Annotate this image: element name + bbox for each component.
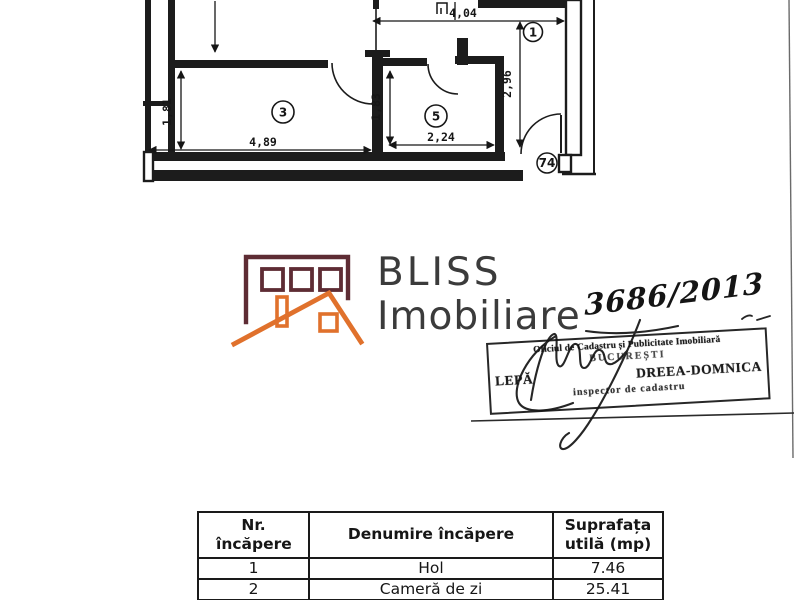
- logo-subtitle: Imobiliare: [377, 294, 581, 339]
- dim-label-room5-height: 1,83: [369, 93, 383, 121]
- wall-left-outer-upper: [145, 0, 151, 103]
- room1-circle: [524, 23, 543, 42]
- col-header-number-text: Nr. încăpere: [216, 516, 291, 555]
- door-arcs: [332, 63, 561, 154]
- logo-window-2: [291, 269, 312, 290]
- cell-room-name: Cameră de zi: [309, 579, 553, 600]
- room-number-circles: 1 3 5 74: [272, 23, 557, 174]
- fold-line: [471, 413, 794, 421]
- cell-room-area: 25.41: [553, 579, 663, 600]
- room-area-table: Nr. încăpere Denumire încăpere Suprafața…: [197, 511, 664, 600]
- dim-label-top-width: 4,04: [449, 6, 477, 20]
- cell-room-name: Hol: [309, 558, 553, 579]
- dimension-labels: 4,04 2,96 1,81 4,89 1,83 2,24: [160, 6, 514, 149]
- wall-bottom-inner: [145, 152, 505, 161]
- wall-middle: [372, 56, 383, 160]
- entrance-door-arc: [521, 114, 561, 154]
- wall-left-outer-lower: [145, 101, 151, 155]
- cell-room-area: 7.46: [553, 558, 663, 579]
- dim-label-room5-width: 2,24: [427, 130, 455, 144]
- wall-room5-top-right: [455, 56, 503, 64]
- logo-roof-line: [234, 293, 361, 344]
- col-header-area: Suprafața utilă (mp): [553, 512, 663, 558]
- wall-right-hollow: [566, 0, 581, 155]
- room3-label: 3: [279, 106, 287, 120]
- wall-stub-top: [373, 0, 379, 9]
- wall-bottom-outer: [143, 170, 523, 181]
- room3-door-arc: [332, 63, 373, 104]
- wall-top-right: [478, 0, 570, 8]
- wall-room5-right: [495, 56, 504, 158]
- col-header-area-text: Suprafața utilă (mp): [561, 516, 656, 555]
- logo-title: BLISS: [377, 250, 502, 295]
- logo-window-1: [262, 269, 283, 290]
- wall-room3-top: [168, 60, 328, 68]
- room1-label: 1: [529, 26, 537, 40]
- logo-roof-window: [320, 314, 337, 331]
- wall-room3-left: [168, 0, 175, 155]
- cell-room-number: 2: [198, 579, 309, 600]
- table-header-row: Nr. încăpere Denumire încăpere Suprafața…: [198, 512, 663, 558]
- dim-label-room3-height: 1,81: [160, 98, 174, 126]
- wall-left-end-block: [144, 152, 153, 181]
- dim-label-room3-width: 4,89: [249, 135, 277, 149]
- wall-step-block: [559, 155, 571, 172]
- stamp-inspector-name-start: LEPĂ: [495, 371, 534, 389]
- window-symbol: [437, 3, 447, 14]
- logo-building: [246, 257, 348, 322]
- dimension-lines: [149, 1, 564, 150]
- scanned-cadastral-document: 4,04 2,96 1,81 4,89 1,83 2,24 1 3 5 74: [0, 0, 800, 600]
- col-header-number: Nr. încăpere: [198, 512, 309, 558]
- handwriting-dashes: [742, 315, 770, 320]
- handwritten-registration-number: 3686/2013: [584, 266, 764, 322]
- room3-circle: [272, 101, 294, 123]
- wall-middle-cap: [365, 50, 390, 57]
- dim-label-hall-height: 2,96: [500, 70, 514, 98]
- table-row: 1 Hol 7.46: [198, 558, 663, 579]
- logo-window-3: [320, 269, 341, 290]
- table-row: 2 Cameră de zi 25.41: [198, 579, 663, 600]
- wall-room5-jamb: [457, 38, 468, 65]
- room5-label: 5: [432, 110, 440, 124]
- room5-door-arc: [428, 64, 458, 94]
- col-header-name: Denumire încăpere: [309, 512, 553, 558]
- scan-page-edge: [789, 0, 793, 458]
- wall-left-jog: [143, 101, 169, 106]
- logo-roof: [234, 293, 361, 344]
- plan-walls: [143, 0, 570, 181]
- logo-chimney: [277, 297, 287, 326]
- entrance-label: 74: [539, 156, 556, 170]
- table-header: Nr. încăpere Denumire încăpere Suprafața…: [198, 512, 663, 558]
- cadastre-stamp: Oficiul de Cadastru și Publicitate Imobi…: [486, 327, 771, 415]
- cell-room-number: 1: [198, 558, 309, 579]
- logo-building-outline: [246, 257, 348, 322]
- room5-circle: [425, 105, 447, 127]
- entrance-circle: [537, 153, 557, 173]
- wall-room5-top-left: [383, 58, 427, 66]
- logo-house-icon: [234, 257, 361, 344]
- plan-walls-hollow: [144, 0, 581, 181]
